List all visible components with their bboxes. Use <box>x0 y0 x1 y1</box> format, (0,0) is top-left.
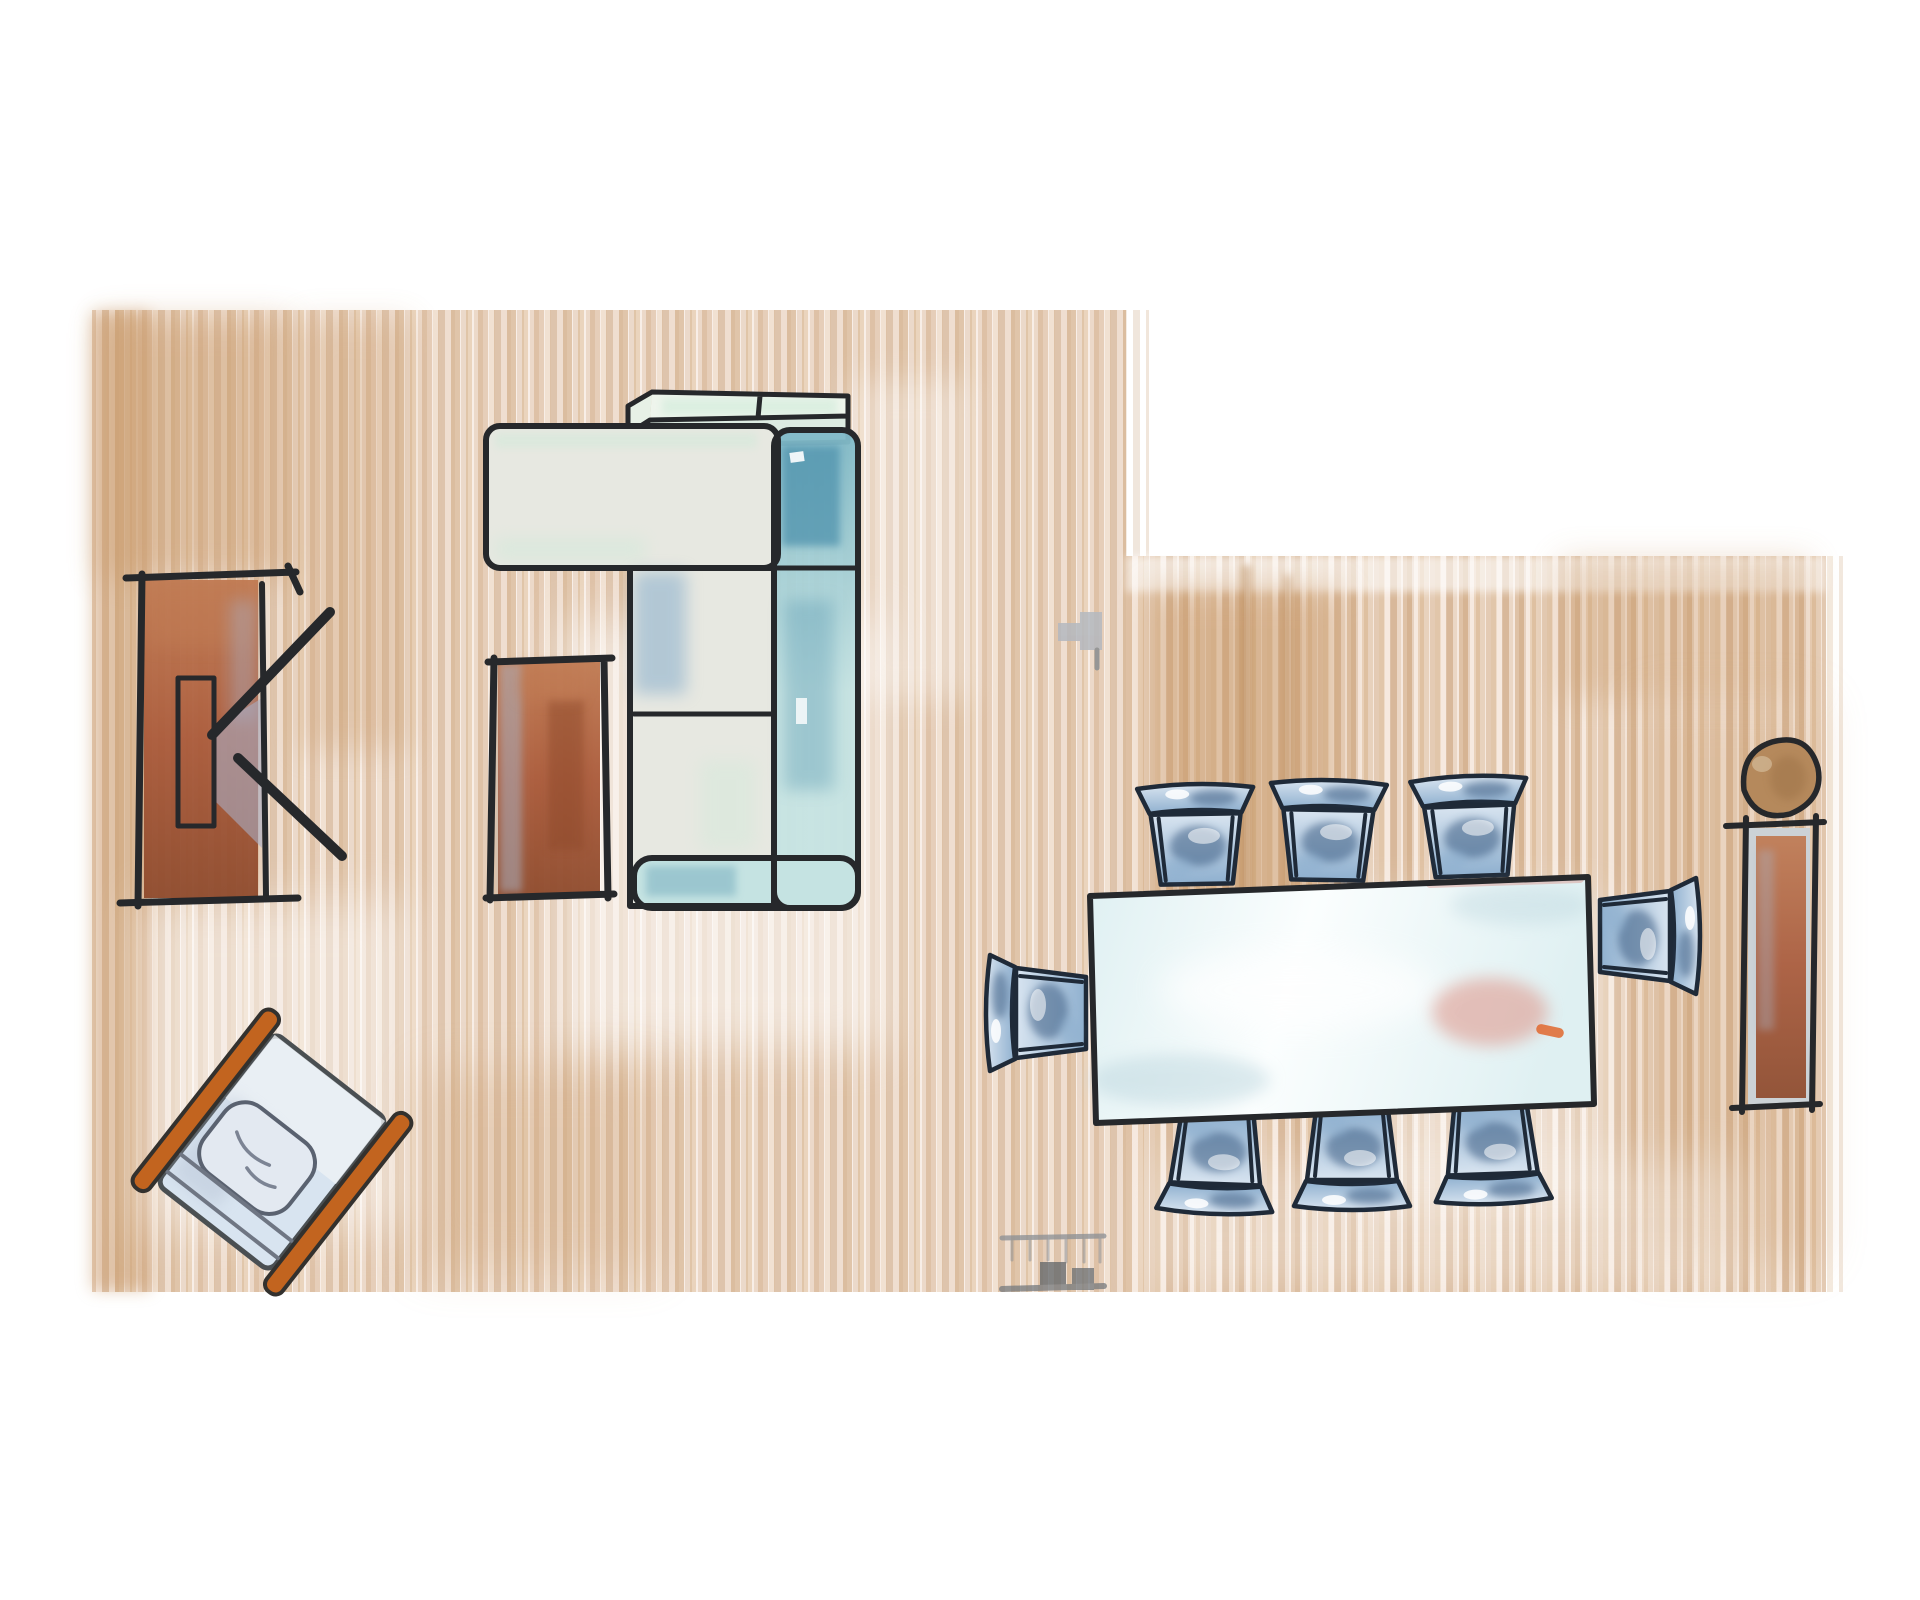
floor-stain <box>420 1070 660 1270</box>
coffee-table <box>486 658 614 900</box>
sketch-frame <box>138 574 142 906</box>
floor-stain <box>1560 558 1810 698</box>
floorplan-illustration <box>0 0 1920 1600</box>
sketch-frame <box>120 898 298 903</box>
table-pink-smudge <box>1432 978 1548 1046</box>
floor-stain <box>300 320 410 750</box>
dining-table <box>1090 877 1594 1123</box>
floorplan-svg <box>0 0 1920 1600</box>
floor-stain <box>100 318 290 578</box>
floor-highlight <box>850 380 970 700</box>
sketch-frame <box>262 584 266 896</box>
round-stool <box>1744 740 1819 816</box>
